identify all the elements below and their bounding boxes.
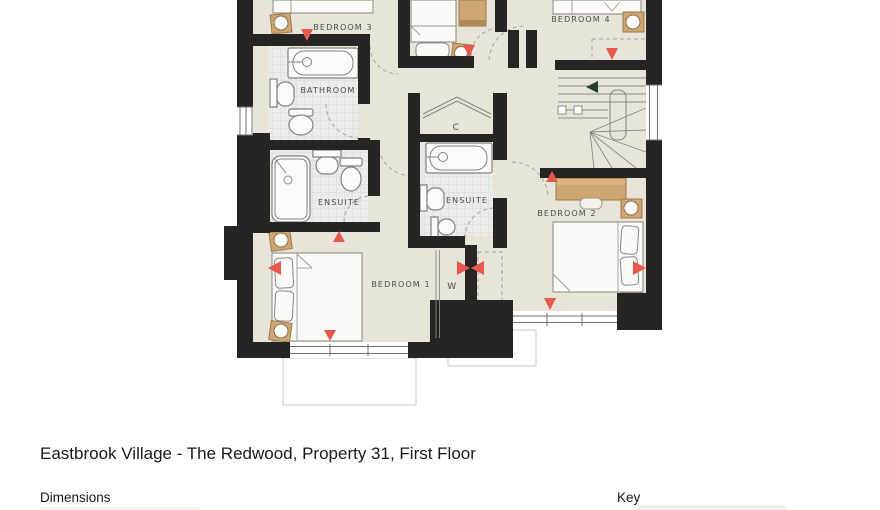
window-right [646, 85, 662, 140]
page-title: Eastbrook Village - The Redwood, Propert… [40, 444, 476, 464]
room-label-ensuite2: ENSUITE [446, 196, 488, 205]
dimensions-heading: Dimensions [40, 490, 111, 505]
bed-icon [273, 0, 373, 13]
room-label-bathroom: BATHROOM [300, 86, 355, 95]
key-heading: Key [617, 490, 640, 505]
pillow-icon [274, 258, 294, 289]
window-bedroom1 [290, 342, 408, 358]
window-left [237, 107, 253, 135]
room-label-cupboard: C [453, 123, 460, 133]
room-label-bedroom3: BEDROOM 3 [313, 23, 372, 32]
pillow-icon [620, 225, 639, 254]
shower-icon [272, 156, 310, 222]
ensuite1-toilet-icon [340, 158, 362, 166]
floor-plan-canvas: BEDROOM 3 BEDROOM 4 BATHROOM ENSUITE ENS… [0, 0, 880, 430]
room-label-wardrobe: W [447, 282, 456, 292]
room-label-bedroom1: BEDROOM 1 [371, 280, 430, 289]
ensuite2-toilet-icon [431, 217, 438, 237]
key-legend-edge [637, 505, 787, 510]
canopy-bedroom1 [283, 358, 416, 405]
pillow-icon [274, 291, 294, 322]
pillow-icon [416, 43, 449, 58]
floorplan-page: BEDROOM 3 BEDROOM 4 BATHROOM ENSUITE ENS… [0, 0, 880, 510]
ensuite1-sink-icon [313, 150, 341, 157]
window-bedroom2 [513, 311, 617, 328]
room-label-bedroom4: BEDROOM 4 [551, 15, 610, 24]
bathroom-sink-icon [270, 79, 277, 107]
room-label-bedroom2: BEDROOM 2 [537, 209, 596, 218]
ensuite2-sink-icon [420, 185, 427, 211]
single-bed-icon [411, 0, 456, 42]
chair-icon [580, 198, 602, 209]
room-label-ensuite1: ENSUITE [318, 198, 360, 207]
